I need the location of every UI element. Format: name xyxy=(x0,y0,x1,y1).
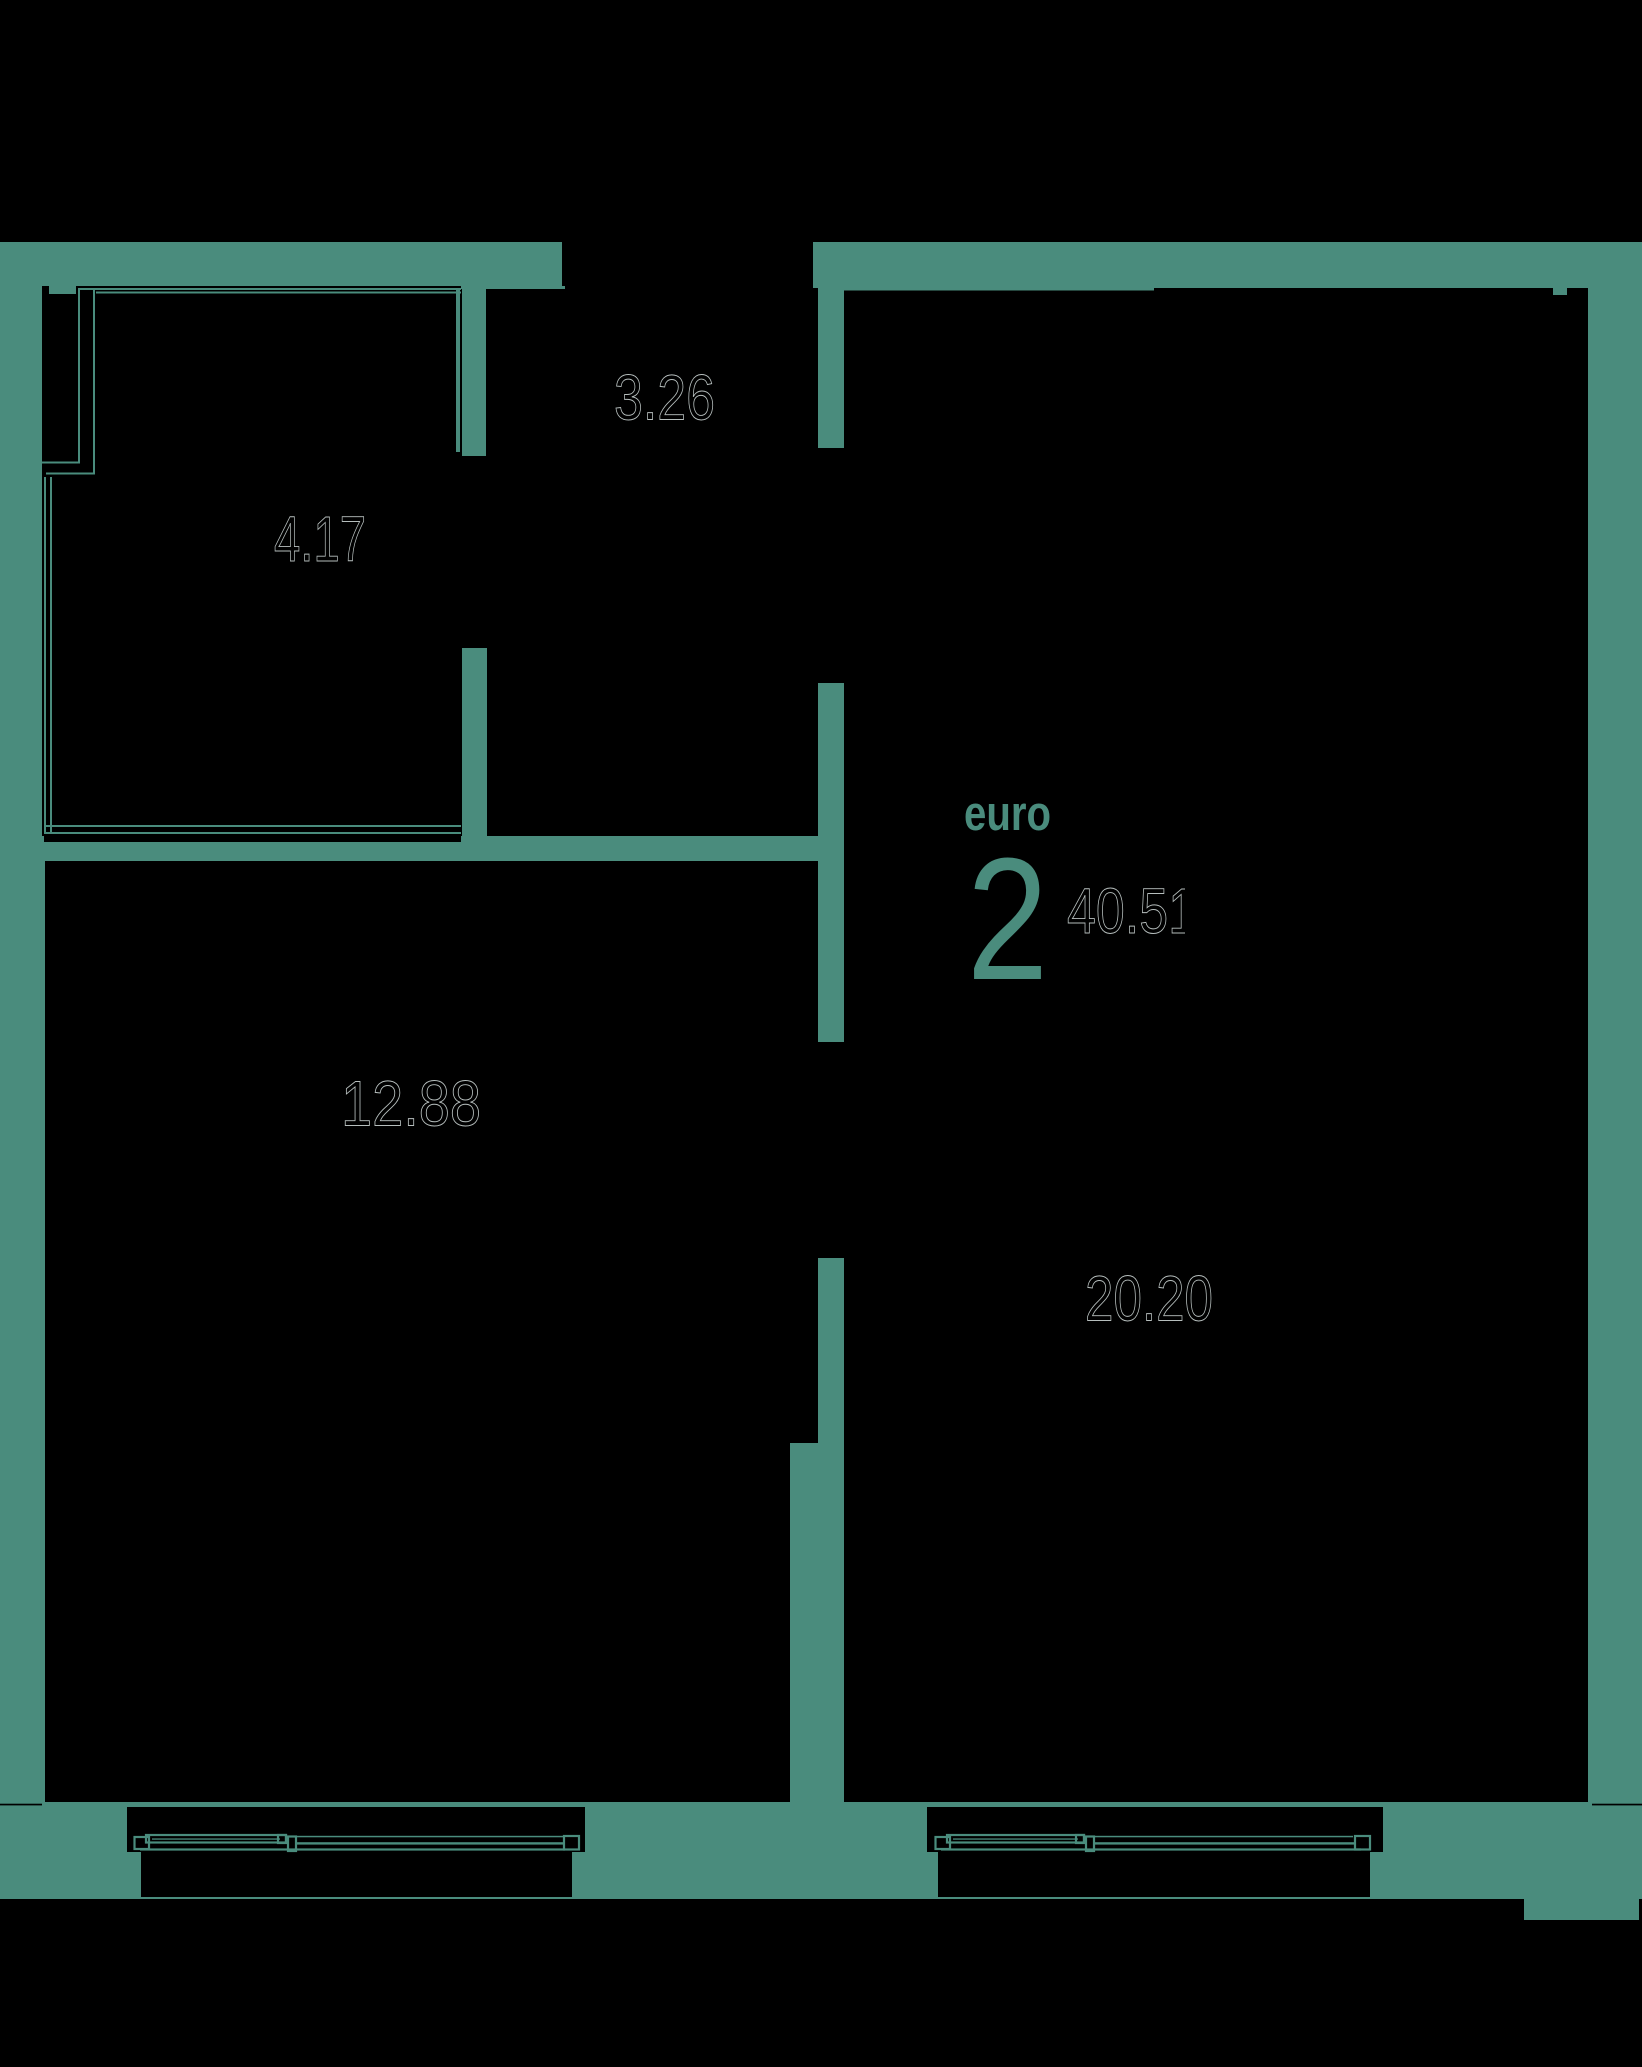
svg-text:2: 2 xyxy=(967,822,1049,1017)
svg-text:4.17: 4.17 xyxy=(274,503,366,575)
svg-text:3.26: 3.26 xyxy=(614,362,715,434)
svg-text:20.20: 20.20 xyxy=(1085,1263,1213,1335)
svg-text:40.51: 40.51 xyxy=(1067,875,1197,947)
svg-text:12.88: 12.88 xyxy=(341,1068,481,1140)
